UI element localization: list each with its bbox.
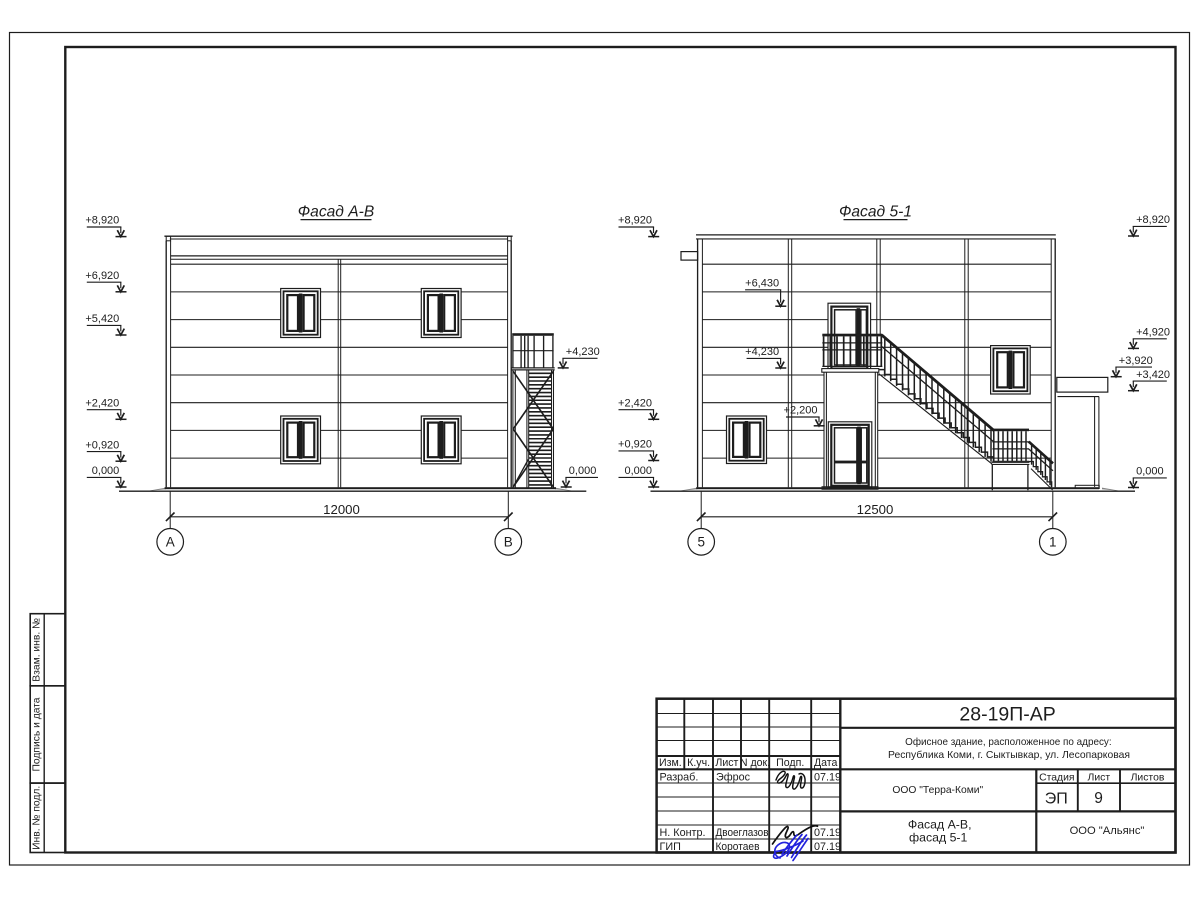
svg-text:+3,920: +3,920 [1119, 355, 1153, 367]
svg-text:ООО "Альянс": ООО "Альянс" [1070, 825, 1145, 837]
svg-text:+2,420: +2,420 [85, 397, 119, 409]
svg-text:Изм.: Изм. [659, 757, 682, 769]
svg-text:Фасад А-В,: Фасад А-В, [908, 817, 972, 831]
svg-text:Взам. инв. №: Взам. инв. № [31, 618, 42, 682]
svg-text:Подп.: Подп. [776, 757, 804, 769]
svg-text:Стадия: Стадия [1039, 772, 1074, 783]
svg-text:+6,920: +6,920 [85, 270, 119, 282]
svg-text:+6,430: +6,430 [745, 278, 779, 290]
svg-text:0,000: 0,000 [92, 465, 120, 477]
svg-text:0,000: 0,000 [569, 465, 597, 477]
svg-text:Инв. № подл.: Инв. № подл. [31, 786, 42, 850]
svg-text:07.19: 07.19 [814, 771, 841, 783]
svg-text:Листов: Листов [1131, 772, 1165, 783]
svg-text:ЭП: ЭП [1045, 790, 1068, 807]
svg-text:+0,920: +0,920 [85, 439, 119, 451]
svg-text:Эфрос: Эфрос [716, 771, 751, 783]
svg-text:+5,420: +5,420 [85, 313, 119, 325]
svg-text:+8,920: +8,920 [1136, 214, 1170, 226]
svg-text:ГИП: ГИП [660, 841, 681, 853]
svg-text:Республика Коми, г. Сыктывкар,: Республика Коми, г. Сыктывкар, ул. Лесоп… [888, 749, 1130, 761]
svg-text:0,000: 0,000 [624, 465, 652, 477]
svg-text:+0,920: +0,920 [618, 439, 652, 451]
svg-text:ООО "Терра-Коми": ООО "Терра-Коми" [892, 785, 983, 796]
svg-text:А: А [166, 535, 175, 550]
svg-text:Н. Контр.: Н. Контр. [660, 827, 706, 839]
svg-text:1: 1 [1049, 535, 1057, 550]
svg-text:+4,230: +4,230 [745, 346, 779, 358]
svg-text:07.19: 07.19 [814, 841, 841, 853]
svg-text:Фасад А-В: Фасад А-В [298, 204, 374, 221]
svg-text:Офисное здание, расположенное: Офисное здание, расположенное по адресу: [905, 736, 1112, 748]
svg-text:Двоеглазов: Двоеглазов [716, 827, 769, 839]
svg-text:+3,420: +3,420 [1136, 369, 1170, 381]
svg-text:+8,920: +8,920 [618, 215, 652, 227]
svg-text:9: 9 [1094, 790, 1103, 807]
svg-text:0,000: 0,000 [1136, 466, 1164, 478]
svg-text:07.19: 07.19 [814, 827, 841, 839]
svg-text:В: В [504, 535, 513, 550]
svg-text:+2,200: +2,200 [784, 405, 818, 417]
svg-text:+8,920: +8,920 [85, 215, 119, 227]
svg-text:Дата: Дата [814, 757, 838, 769]
svg-text:+4,230: +4,230 [566, 346, 600, 358]
svg-text:Коротаев: Коротаев [716, 841, 760, 853]
svg-text:+2,420: +2,420 [618, 397, 652, 409]
svg-text:5: 5 [697, 535, 705, 550]
svg-text:+4,920: +4,920 [1136, 327, 1170, 339]
svg-text:12000: 12000 [323, 502, 360, 517]
svg-text:фасад 5-1: фасад 5-1 [909, 831, 967, 845]
svg-text:N док.: N док. [740, 757, 770, 769]
svg-text:Лист: Лист [1088, 772, 1111, 783]
svg-text:К.уч.: К.уч. [687, 757, 710, 769]
svg-text:28-19П-АР: 28-19П-АР [959, 703, 1055, 725]
svg-text:Фасад 5-1: Фасад 5-1 [839, 204, 912, 221]
svg-text:Разраб.: Разраб. [660, 771, 699, 783]
svg-text:Лист: Лист [715, 757, 738, 769]
svg-text:Подпись и дата: Подпись и дата [31, 697, 42, 771]
svg-text:12500: 12500 [857, 502, 894, 517]
